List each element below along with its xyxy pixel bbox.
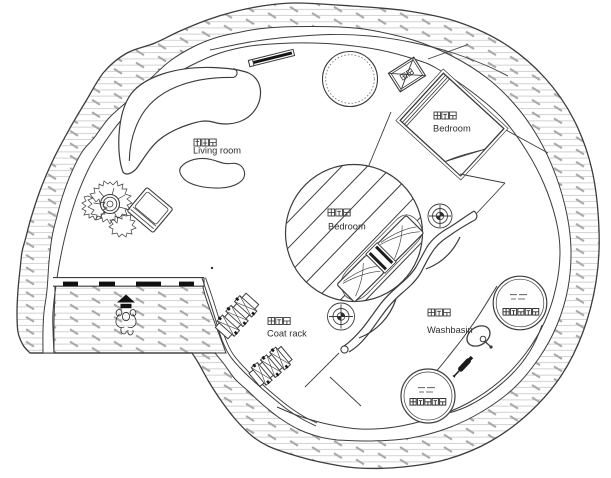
svg-text:Living room: Living room — [193, 146, 241, 156]
svg-text:Bedroom: Bedroom — [328, 222, 366, 232]
svg-text:Bedroom: Bedroom — [433, 124, 471, 134]
svg-text:Coat rack: Coat rack — [267, 329, 307, 339]
